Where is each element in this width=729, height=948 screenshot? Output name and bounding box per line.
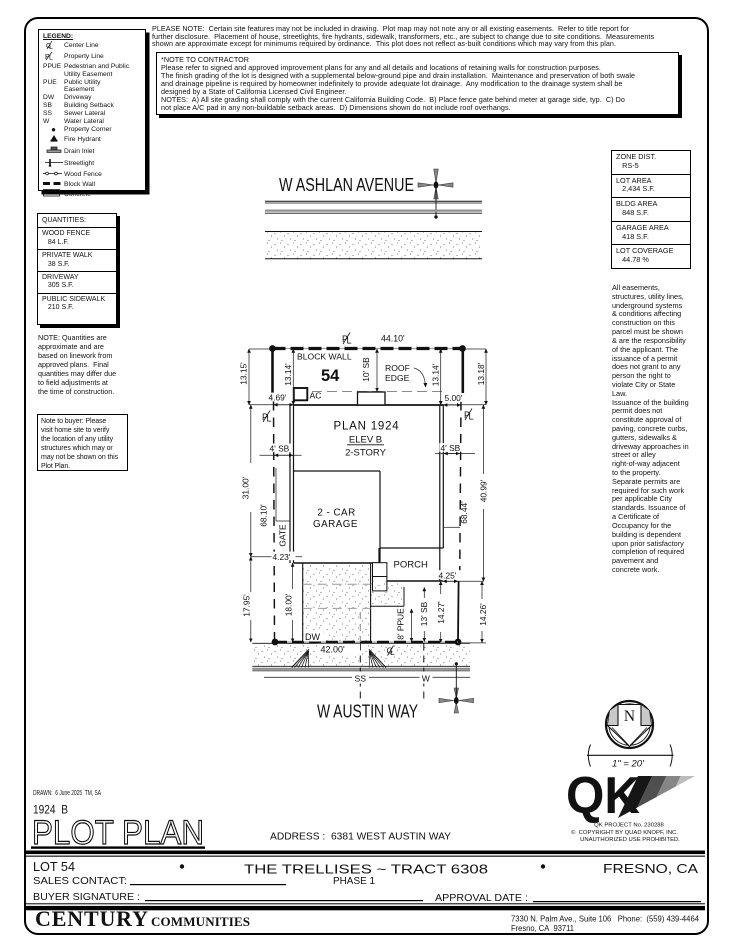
svg-text:SALES CONTACT:: SALES CONTACT: [33,875,127,887]
svg-text:CENTURY: CENTURY [35,906,148,931]
svg-text:7330 N. Palm Ave., Suite 106: 7330 N. Palm Ave., Suite 106 Phone: (559… [511,915,699,924]
svg-text:BUYER SIGNATURE :: BUYER SIGNATURE : [33,891,140,903]
svg-text:FRESNO, CA: FRESNO, CA [603,861,698,876]
svg-text:Fresno, CA 93711: Fresno, CA 93711 [511,924,574,933]
svg-text:APPROVAL DATE :: APPROVAL DATE : [435,892,528,904]
svg-text:PLOT PLAN: PLOT PLAN [32,814,204,852]
svg-text:ADDRESS : 6381 WEST AUSTIN WA: ADDRESS : 6381 WEST AUSTIN WAY [270,831,451,843]
svg-text:DRAWN: 6 June 2025 TM, SA: DRAWN: 6 June 2025 TM, SA [33,790,101,797]
svg-text:LOT 54: LOT 54 [33,860,75,874]
svg-text:PHASE 1: PHASE 1 [333,875,375,887]
svg-text:COMMUNITIES: COMMUNITIES [151,914,250,929]
